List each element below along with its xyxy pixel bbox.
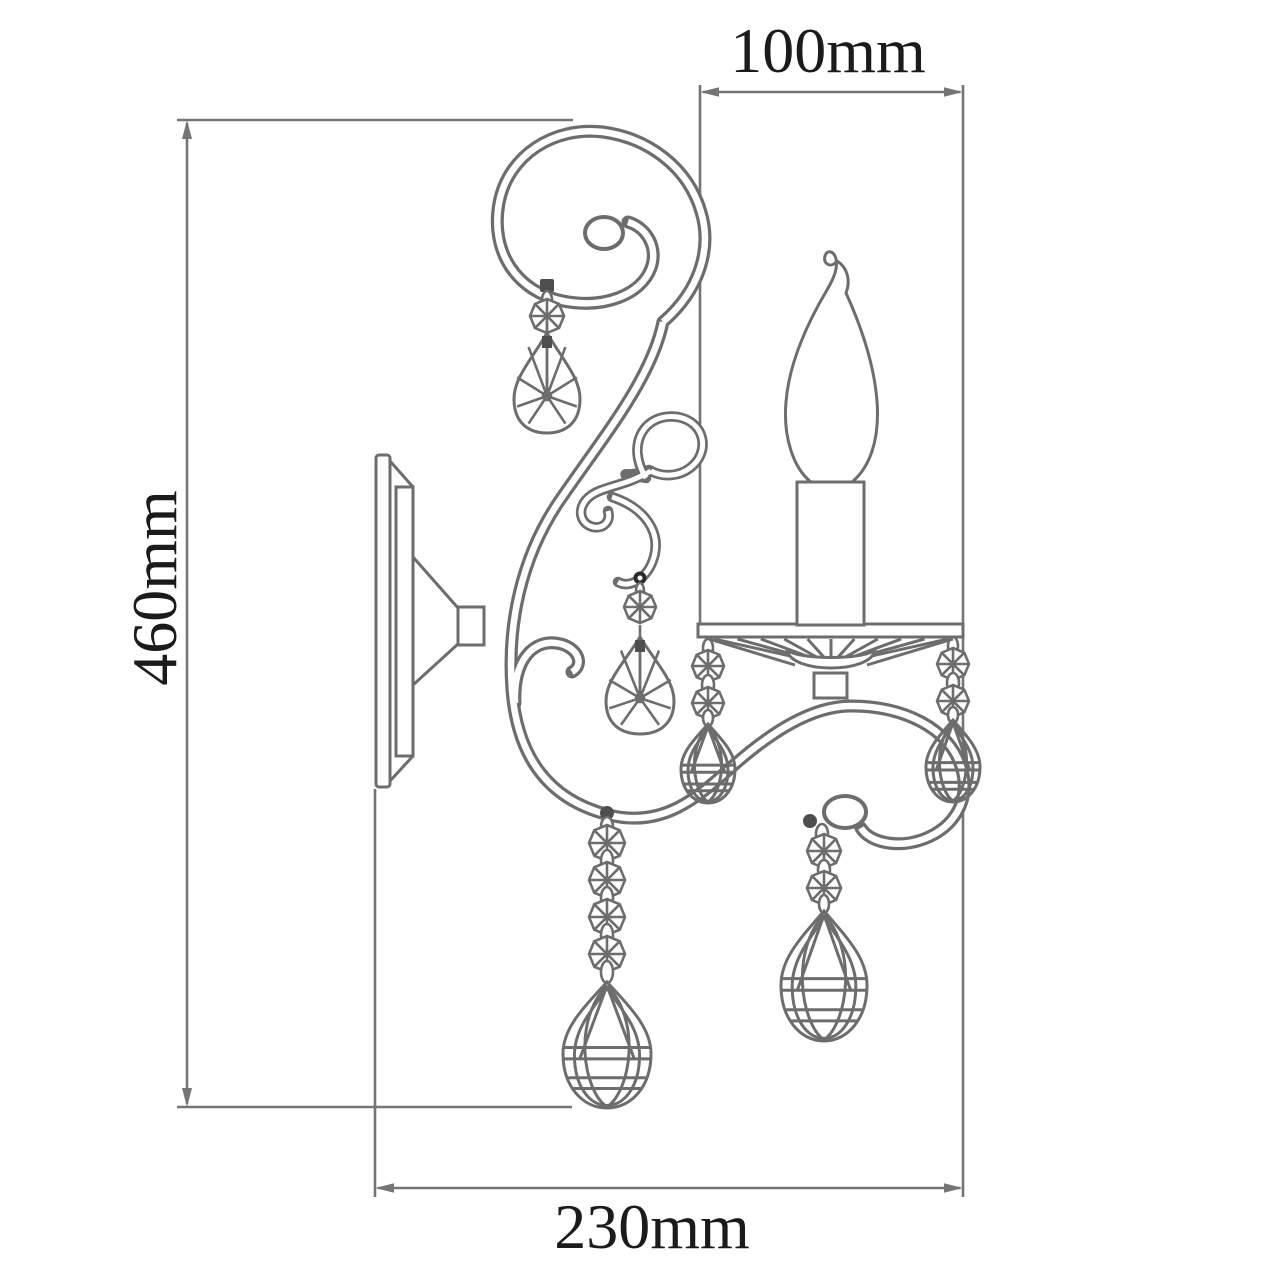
mount-cone — [413, 557, 458, 685]
arrow-left-icon — [375, 1183, 394, 1193]
attachment-dot — [803, 814, 817, 828]
wall-plate — [376, 455, 484, 787]
caged-teardrop-pendant — [563, 982, 651, 1108]
dim-label-top-width: 100mm — [730, 15, 926, 86]
arrow-up-icon — [182, 120, 192, 139]
arrow-right-icon — [944, 87, 963, 97]
arrow-left-icon — [700, 87, 719, 97]
crystal-chains-and-pendants — [514, 279, 980, 1108]
mount-connector — [458, 607, 484, 645]
arm-eye — [824, 796, 866, 828]
candle-flame — [785, 252, 877, 482]
scroll-hook — [515, 643, 579, 703]
chain-link — [601, 961, 613, 983]
bobeche — [698, 624, 963, 698]
bobeche-stem — [814, 673, 847, 698]
mounting-arm-scroll — [497, 131, 964, 843]
caged-teardrop-pendant — [681, 724, 735, 803]
sconce-technical-drawing: 460mm 100mm 230mm — [0, 0, 1280, 1280]
arrow-down-icon — [182, 1088, 192, 1107]
dim-label-height: 460mm — [119, 490, 190, 686]
candle — [785, 252, 877, 625]
candle-sleeve — [797, 482, 864, 625]
technical-drawing-page: 460mm 100mm 230mm — [0, 0, 1280, 1280]
pendant-ring-icon — [636, 574, 645, 583]
caged-teardrop-pendant — [781, 911, 867, 1041]
scroll-eye-top — [585, 217, 623, 249]
dim-label-bottom-depth: 230mm — [554, 1191, 750, 1262]
arrow-right-icon — [944, 1183, 963, 1193]
dimension-bottom-depth: 230mm — [375, 789, 963, 1262]
